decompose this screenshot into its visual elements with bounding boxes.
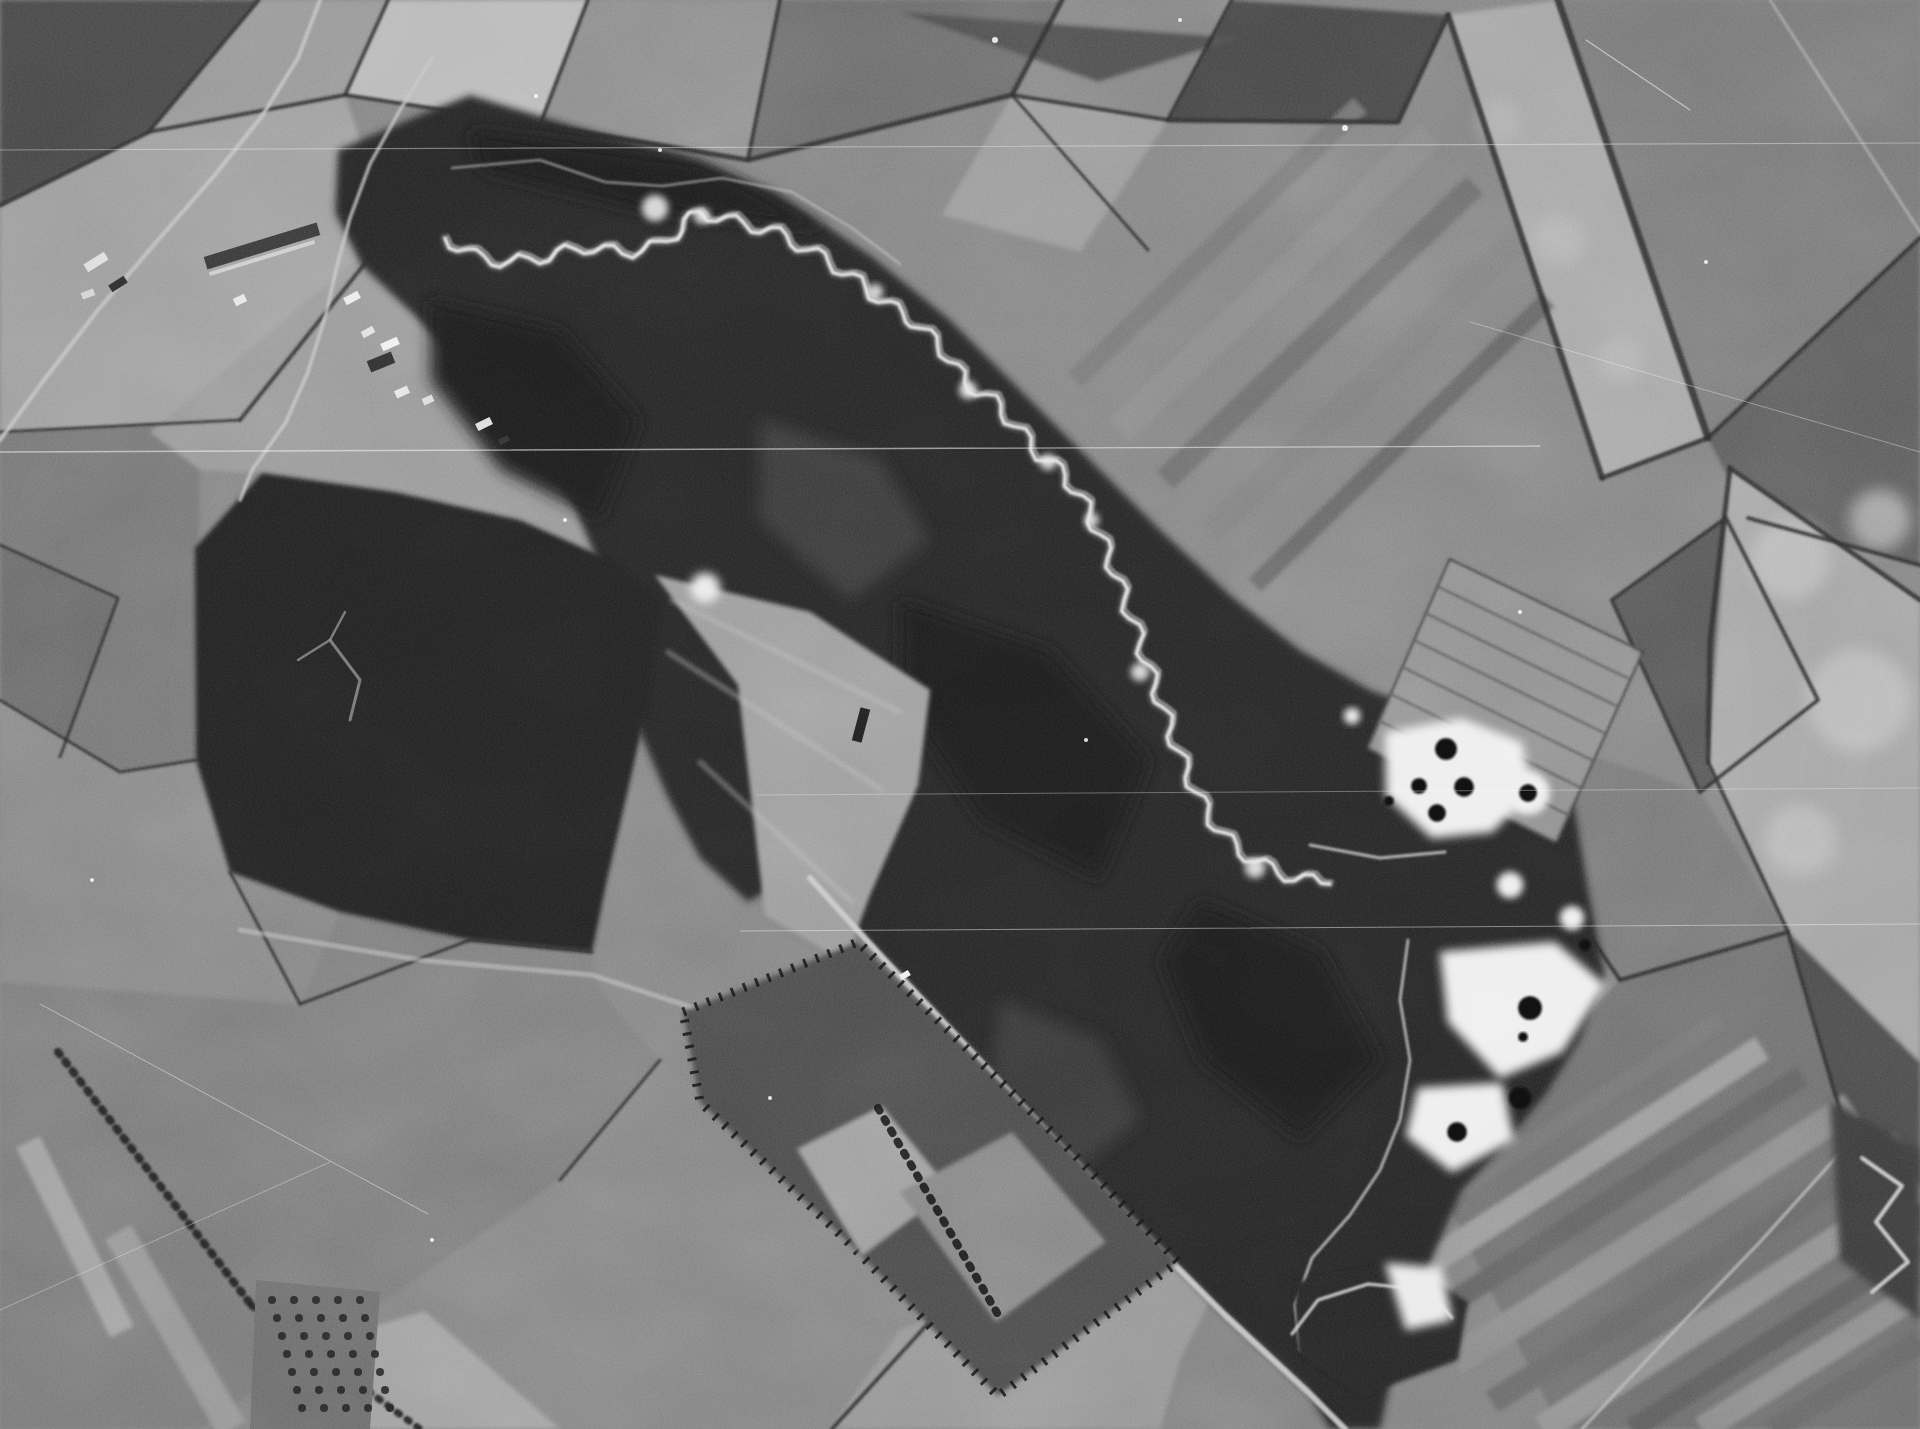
vignette-overlay bbox=[0, 0, 1920, 1429]
aerial-photograph bbox=[0, 0, 1920, 1429]
aerial-photo-svg bbox=[0, 0, 1920, 1429]
